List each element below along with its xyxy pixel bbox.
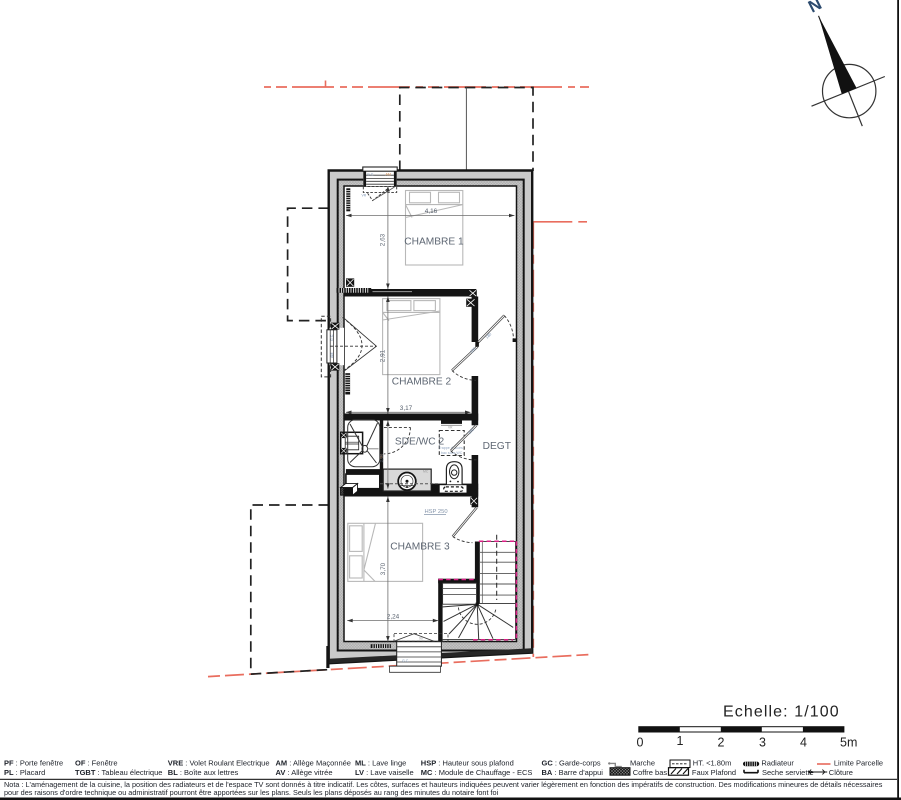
svg-text:DEGT: DEGT [483, 441, 511, 452]
svg-text:Coffre bas: Coffre bas [633, 768, 668, 777]
svg-text:HSP : Hauteur sous plafond: HSP : Hauteur sous plafond [421, 759, 514, 768]
svg-text:AM : Allège Maçonnée: AM : Allège Maçonnée [276, 759, 351, 768]
svg-text:2,63: 2,63 [380, 233, 387, 246]
svg-text:3: 3 [759, 736, 766, 750]
svg-text:90: 90 [419, 637, 423, 641]
svg-text:AM: AM [330, 353, 334, 358]
svg-text:VR: VR [362, 193, 367, 197]
svg-text:pour des raisons d'ordre techn: pour des raisons d'ordre technique ou ad… [4, 788, 499, 797]
svg-text:MC: MC [423, 470, 429, 474]
svg-text:Marche: Marche [630, 759, 655, 768]
svg-text:SDE/WC 2: SDE/WC 2 [395, 436, 445, 447]
svg-text:CHAMBRE 1: CHAMBRE 1 [404, 237, 464, 248]
svg-text:2,91: 2,91 [380, 349, 387, 362]
svg-text:2,05: 2,05 [379, 453, 384, 462]
svg-text:LV : Lave vaiselle: LV : Lave vaiselle [355, 768, 414, 777]
svg-text:G.C.: G.C. [367, 172, 374, 176]
svg-text:Seche serviette: Seche serviette [762, 768, 814, 777]
svg-text:TGBT : Tableau électrique: TGBT : Tableau électrique [75, 768, 162, 777]
svg-text:4,16: 4,16 [425, 208, 438, 215]
svg-text:AM: AM [386, 172, 391, 176]
svg-text:Limite Parcelle: Limite Parcelle [834, 759, 883, 768]
svg-text:1: 1 [677, 734, 684, 748]
svg-text:G.C.: G.C. [402, 659, 409, 663]
svg-text:CHAMBRE 2: CHAMBRE 2 [392, 377, 452, 388]
svg-text:5m: 5m [840, 736, 857, 750]
svg-text:HT. <1.80m: HT. <1.80m [693, 759, 732, 768]
svg-text:Radiateur: Radiateur [761, 759, 794, 768]
svg-text:VR: VR [448, 425, 453, 429]
svg-text:GC : Garde-corps: GC : Garde-corps [542, 759, 601, 768]
svg-text:PF : Porte fenêtre: PF : Porte fenêtre [4, 759, 63, 768]
svg-text:4: 4 [800, 736, 807, 750]
svg-text:OF : Fenêtre: OF : Fenêtre [75, 759, 118, 768]
svg-text:Clôture: Clôture [829, 768, 853, 777]
svg-text:CHAMBRE 3: CHAMBRE 3 [390, 542, 450, 553]
svg-text:HSP 250: HSP 250 [425, 509, 448, 515]
svg-text:3,70: 3,70 [380, 562, 387, 575]
svg-text:2,24: 2,24 [387, 613, 400, 620]
svg-text:BL : Boîte aux lettres: BL : Boîte aux lettres [168, 768, 239, 777]
svg-text:0: 0 [637, 736, 644, 750]
svg-text:VRE : Volet Roulant Electrique: VRE : Volet Roulant Electrique [168, 759, 270, 768]
svg-text:G.C.: G.C. [330, 334, 334, 341]
svg-text:Echelle: 1/100: Echelle: 1/100 [723, 704, 840, 721]
svg-text:2: 2 [718, 736, 725, 750]
svg-text:3,17: 3,17 [400, 405, 413, 412]
svg-text:AV : Allège vitrée: AV : Allège vitrée [276, 768, 333, 777]
svg-text:BA : Barre d'appui: BA : Barre d'appui [542, 768, 604, 777]
svg-text:ML : Lave linge: ML : Lave linge [355, 759, 406, 768]
svg-text:MC : Module de Chauffage - ECS: MC : Module de Chauffage - ECS [421, 768, 533, 777]
svg-text:PL : Placard: PL : Placard [4, 768, 45, 777]
svg-text:Faux Plafond: Faux Plafond [692, 768, 736, 777]
